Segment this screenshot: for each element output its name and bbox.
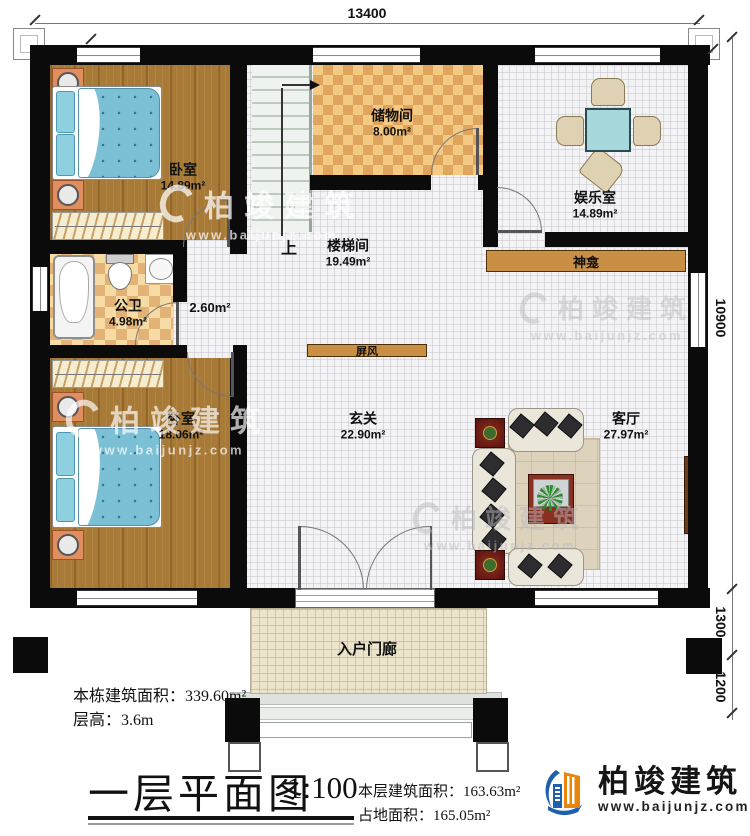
- nightstand: [52, 392, 84, 422]
- nightstand: [52, 530, 84, 560]
- column-footing: [476, 742, 509, 772]
- wall-left: [30, 45, 50, 593]
- bathtub: [53, 255, 95, 339]
- dimension-right-mid: 1300: [713, 606, 729, 637]
- scale-label: 1:100: [287, 770, 358, 806]
- room-label-storage: 储物间 8.00m²: [371, 107, 413, 138]
- bed-sheet: [78, 88, 104, 178]
- window: [535, 590, 658, 606]
- brand-website: www.baijunjz.com: [598, 799, 750, 814]
- door-leaf: [476, 128, 479, 175]
- brand-logo-icon: [540, 764, 590, 816]
- game-table: [585, 108, 631, 152]
- dimension-right-upper: 10900: [713, 299, 729, 338]
- window: [690, 273, 706, 347]
- end-table: [475, 550, 505, 580]
- screen-label: 屏风: [356, 343, 378, 359]
- column: [473, 698, 508, 742]
- stat-building-area: 本栋建筑面积：339.60m²: [73, 682, 246, 706]
- wall-bedroom1-right: [230, 45, 247, 254]
- dimension-top-label: 13400: [348, 5, 387, 21]
- nightstand: [52, 180, 84, 210]
- window: [77, 590, 197, 606]
- floor-plan-canvas: 13400 10900 1300 1200 神龛 屏: [0, 0, 750, 836]
- corner-tick: [85, 33, 96, 44]
- end-table: [475, 418, 505, 448]
- sofa-cushion: [547, 553, 572, 578]
- column: [13, 637, 48, 673]
- window: [313, 47, 420, 63]
- chair: [591, 78, 625, 106]
- wall-storage-bottom: [310, 175, 431, 190]
- porch-step: [230, 707, 502, 720]
- door-leaf: [430, 526, 433, 590]
- chair: [633, 116, 661, 146]
- dimension-line-top: [35, 23, 700, 24]
- bed-sheet: [78, 428, 105, 526]
- dimension-right-lower: 1200: [713, 671, 729, 702]
- stat-footprint: 占地面积：165.05m²: [358, 804, 490, 825]
- bed-blanket: [78, 88, 160, 178]
- room-label-bedroom2: 卧室 18.06m²: [159, 410, 204, 441]
- stairs-up-label: 上: [281, 239, 297, 258]
- bed-blanket: [78, 428, 160, 526]
- sofa-cushion: [533, 411, 558, 436]
- screen-partition: 屏风: [307, 344, 427, 357]
- title-underline: [88, 823, 354, 825]
- stairs-guide-line: [281, 88, 283, 236]
- page-title: 一层平面图: [88, 760, 313, 820]
- bed-pillow: [56, 478, 75, 522]
- wall-bathroom-bottom: [30, 345, 187, 358]
- bed-pillow: [56, 432, 75, 476]
- room-label-living: 客厅 27.97m²: [604, 410, 649, 441]
- sofa-cushion: [509, 413, 534, 438]
- room-label-foyer: 玄关 22.90m²: [341, 410, 386, 441]
- brand-logo: 柏竣建筑 www.baijunjz.com: [540, 764, 750, 816]
- sofa-cushion: [557, 413, 582, 438]
- door-leaf: [231, 352, 234, 397]
- wardrobe: [52, 212, 164, 240]
- room-label-bathroom: 公卫 4.98m²: [109, 297, 147, 328]
- plant: [537, 485, 563, 511]
- sofa: [508, 548, 584, 586]
- window: [77, 47, 140, 63]
- stairs-guide-line: [282, 84, 312, 86]
- column: [686, 638, 722, 674]
- sofa-cushion: [517, 553, 542, 578]
- bed-pillow: [56, 91, 75, 133]
- shrine-shelf: 神龛: [486, 250, 686, 272]
- sofa-cushion: [479, 503, 504, 528]
- door-leaf: [176, 302, 179, 345]
- sofa-cushion: [479, 451, 504, 476]
- front-door-sill: [295, 588, 435, 608]
- wardrobe: [52, 360, 164, 388]
- sofa: [472, 448, 516, 554]
- porch-step: [256, 722, 472, 738]
- bed-pillow: [56, 134, 75, 176]
- room-label-entertainment: 娱乐室 14.89m²: [573, 189, 618, 220]
- sofa-cushion: [481, 477, 506, 502]
- wall-bedroom1-bottom: [30, 240, 187, 254]
- brand-name: 柏竣建筑: [598, 766, 750, 799]
- wall-entertainment-bottom: [545, 232, 688, 247]
- stat-floor-height: 层高：3.6m: [73, 706, 153, 730]
- wall-stub: [233, 345, 247, 358]
- room-label-stairwell: 楼梯间 19.49m²: [326, 237, 371, 268]
- door-leaf: [227, 200, 230, 247]
- title-underline: [88, 816, 354, 820]
- chair: [556, 116, 584, 146]
- sofa-cushion: [481, 527, 506, 552]
- corridor-area-label: 2.60m²: [189, 300, 230, 316]
- room-label-porch: 入户门廊: [337, 641, 397, 659]
- shrine-label: 神龛: [573, 252, 599, 271]
- wall-bathroom-right: [173, 252, 187, 302]
- door-leaf: [298, 526, 301, 590]
- sofa: [508, 408, 584, 452]
- window: [32, 267, 48, 311]
- stairs-rail: [309, 65, 312, 232]
- stairs-arrow-icon: [310, 80, 320, 90]
- stat-floor-area: 本层建筑面积：163.63m²: [358, 780, 520, 801]
- window: [535, 47, 660, 63]
- room-label-bedroom1: 卧室 14.89m²: [161, 161, 206, 192]
- door-leaf: [497, 230, 542, 233]
- wall-storage-right: [483, 45, 498, 247]
- dimension-line-right: [732, 38, 733, 720]
